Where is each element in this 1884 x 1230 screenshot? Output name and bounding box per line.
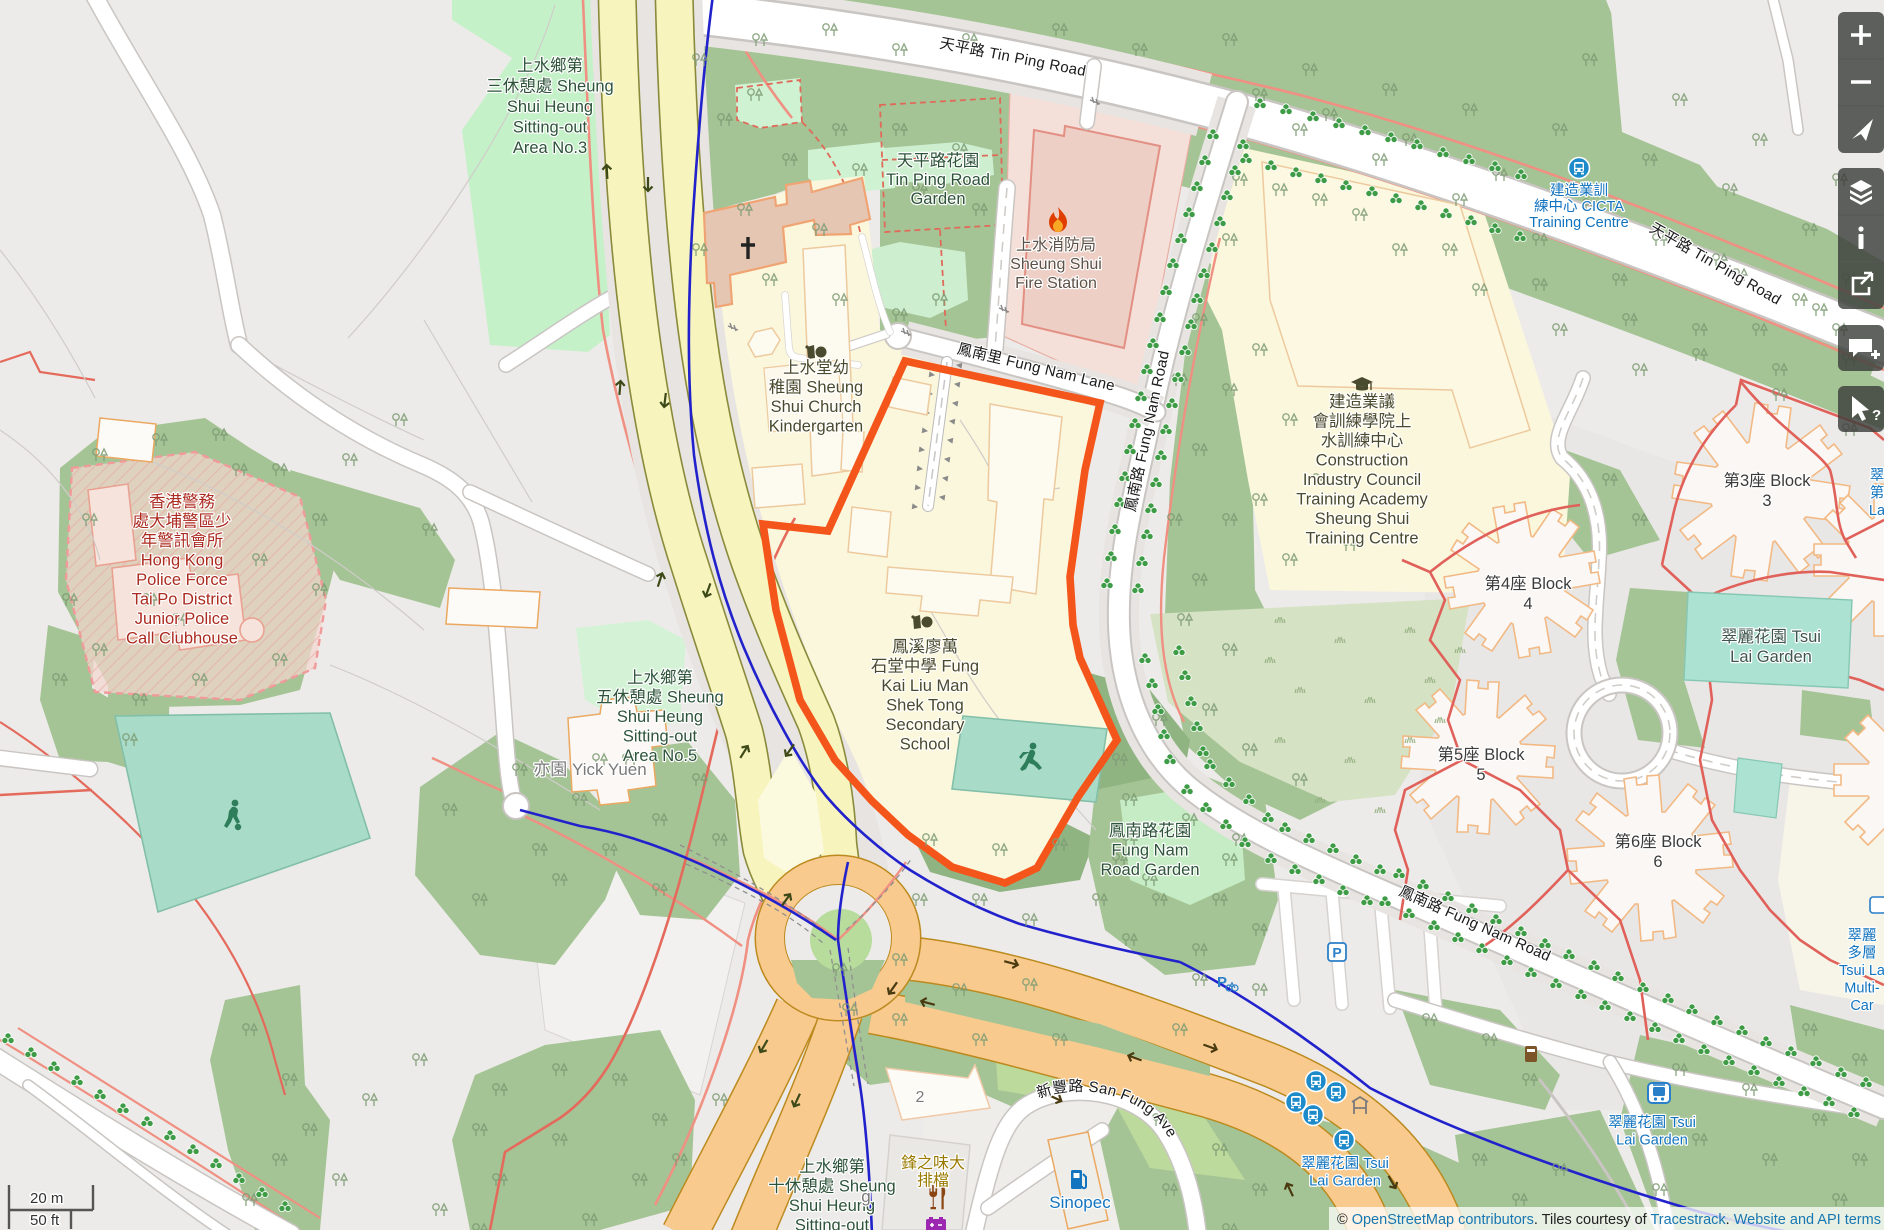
svg-text:Sinopec: Sinopec <box>1049 1193 1111 1212</box>
svg-text:© OpenStreetMap contributors.: © OpenStreetMap contributors. Tiles cour… <box>1337 1212 1881 1228</box>
svg-text:上水消防局Sheung ShuiFire Station: 上水消防局Sheung ShuiFire Station <box>1010 236 1102 292</box>
svg-text:亦園 Yick Yuen: 亦園 Yick Yuen <box>533 760 646 779</box>
svg-text:2: 2 <box>916 1089 925 1106</box>
svg-text:?: ? <box>1872 407 1881 424</box>
svg-text:50 ft: 50 ft <box>30 1212 60 1229</box>
svg-text:20 m: 20 m <box>30 1190 63 1207</box>
svg-text:P: P <box>1332 945 1341 961</box>
svg-text:鳳南路花園Fung NamRoad Garden: 鳳南路花園Fung NamRoad Garden <box>1100 821 1199 879</box>
svg-text:g: g <box>861 1187 870 1206</box>
